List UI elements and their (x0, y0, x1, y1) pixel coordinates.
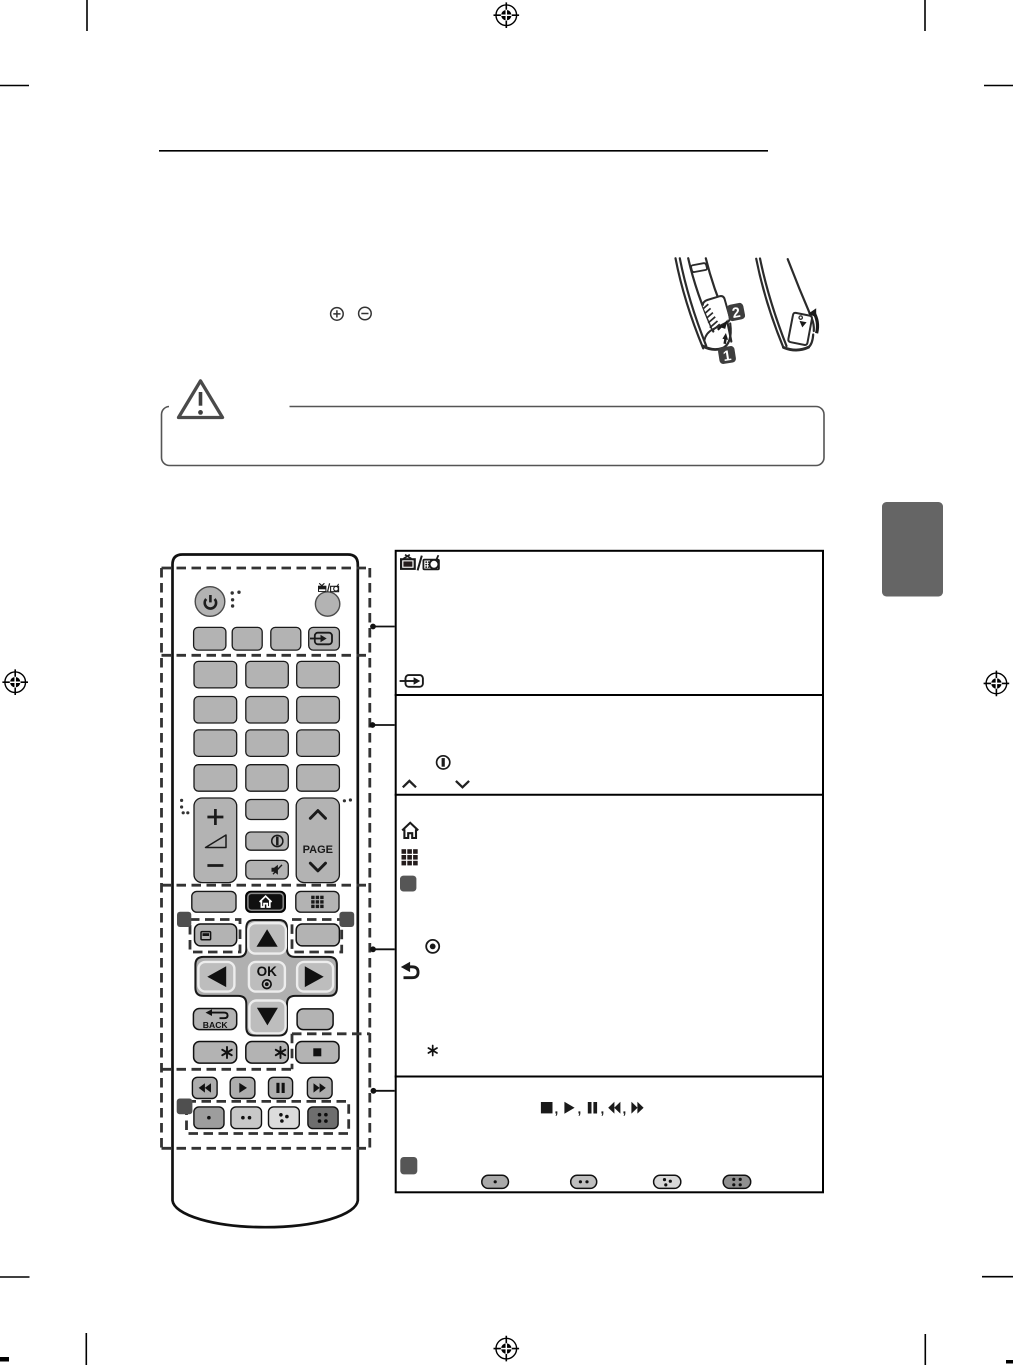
svg-text:OK: OK (257, 964, 278, 979)
svg-text:,: , (555, 1102, 559, 1117)
svg-text:,: , (578, 1102, 582, 1117)
svg-text:,: , (601, 1102, 605, 1117)
svg-text:,: , (623, 1102, 627, 1117)
svg-text:BACK: BACK (203, 1020, 229, 1030)
svg-text:PAGE: PAGE (303, 844, 333, 856)
